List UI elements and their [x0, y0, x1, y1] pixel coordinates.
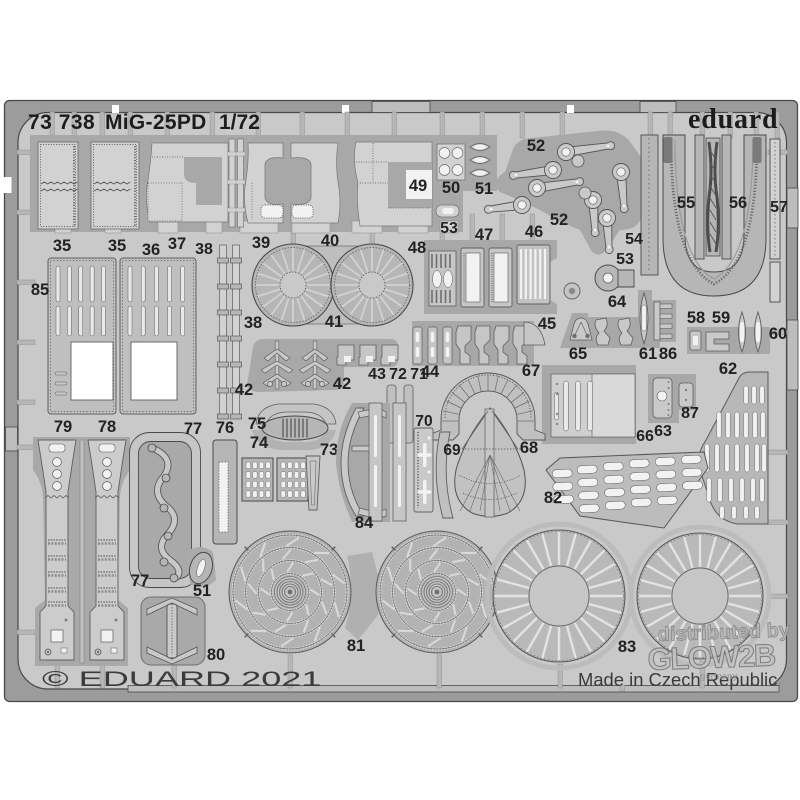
- svg-text:43: 43: [368, 366, 386, 383]
- svg-text:45: 45: [538, 315, 556, 333]
- svg-text:© EDUARD 2021: © EDUARD 2021: [42, 668, 321, 691]
- svg-text:54: 54: [625, 231, 643, 248]
- svg-text:75: 75: [248, 415, 266, 433]
- svg-text:38: 38: [244, 314, 262, 332]
- svg-text:67: 67: [522, 362, 540, 380]
- svg-text:69: 69: [443, 442, 461, 459]
- svg-text:65: 65: [569, 345, 587, 363]
- svg-text:51: 51: [193, 582, 211, 600]
- svg-text:83: 83: [618, 638, 636, 656]
- svg-text:42: 42: [235, 381, 253, 399]
- svg-text:80: 80: [207, 646, 225, 664]
- svg-text:52: 52: [550, 211, 568, 229]
- svg-text:50: 50: [442, 179, 460, 197]
- svg-text:41: 41: [325, 313, 343, 331]
- svg-text:68: 68: [520, 439, 538, 457]
- svg-text:79: 79: [54, 418, 72, 436]
- svg-text:77: 77: [184, 420, 202, 438]
- svg-text:82: 82: [544, 489, 562, 507]
- svg-text:61: 61: [639, 345, 657, 363]
- svg-text:52: 52: [527, 137, 545, 155]
- svg-text:55: 55: [677, 194, 695, 212]
- svg-text:81: 81: [347, 637, 365, 655]
- svg-text:58: 58: [687, 309, 705, 327]
- svg-text:86: 86: [659, 345, 677, 363]
- svg-text:38: 38: [195, 241, 213, 258]
- svg-text:87: 87: [681, 405, 699, 422]
- svg-text:35: 35: [108, 237, 126, 255]
- svg-text:66: 66: [636, 428, 654, 445]
- svg-text:51: 51: [475, 180, 493, 198]
- svg-text:62: 62: [719, 360, 737, 378]
- svg-text:49: 49: [409, 177, 427, 195]
- svg-text:1/72: 1/72: [219, 111, 260, 134]
- svg-text:53: 53: [440, 220, 458, 237]
- svg-text:46: 46: [525, 223, 543, 241]
- svg-text:74: 74: [250, 434, 269, 452]
- svg-text:64: 64: [608, 293, 627, 311]
- svg-text:78: 78: [98, 418, 116, 436]
- svg-text:39: 39: [252, 234, 270, 252]
- svg-text:72: 72: [389, 366, 407, 383]
- svg-text:76: 76: [216, 419, 234, 437]
- svg-text:73 738: 73 738: [28, 111, 95, 134]
- svg-text:42: 42: [333, 375, 351, 393]
- svg-text:44: 44: [421, 363, 440, 381]
- svg-text:eduard: eduard: [688, 104, 778, 135]
- svg-text:36: 36: [142, 241, 160, 259]
- svg-text:37: 37: [168, 235, 186, 253]
- svg-text:57: 57: [770, 199, 788, 216]
- svg-text:60: 60: [769, 325, 787, 343]
- svg-text:85: 85: [31, 281, 49, 299]
- svg-text:53: 53: [616, 251, 634, 268]
- svg-text:35: 35: [53, 237, 71, 255]
- svg-text:MiG-25PD: MiG-25PD: [105, 111, 207, 134]
- svg-text:56: 56: [729, 194, 747, 212]
- svg-text:84: 84: [355, 514, 374, 532]
- svg-text:47: 47: [475, 226, 493, 244]
- svg-text:70: 70: [415, 413, 432, 430]
- svg-text:73: 73: [320, 441, 338, 459]
- svg-text:63: 63: [654, 423, 672, 440]
- svg-text:48: 48: [408, 239, 426, 257]
- svg-text:59: 59: [712, 309, 730, 327]
- svg-text:germany: germany: [700, 671, 738, 681]
- svg-text:77: 77: [131, 572, 149, 590]
